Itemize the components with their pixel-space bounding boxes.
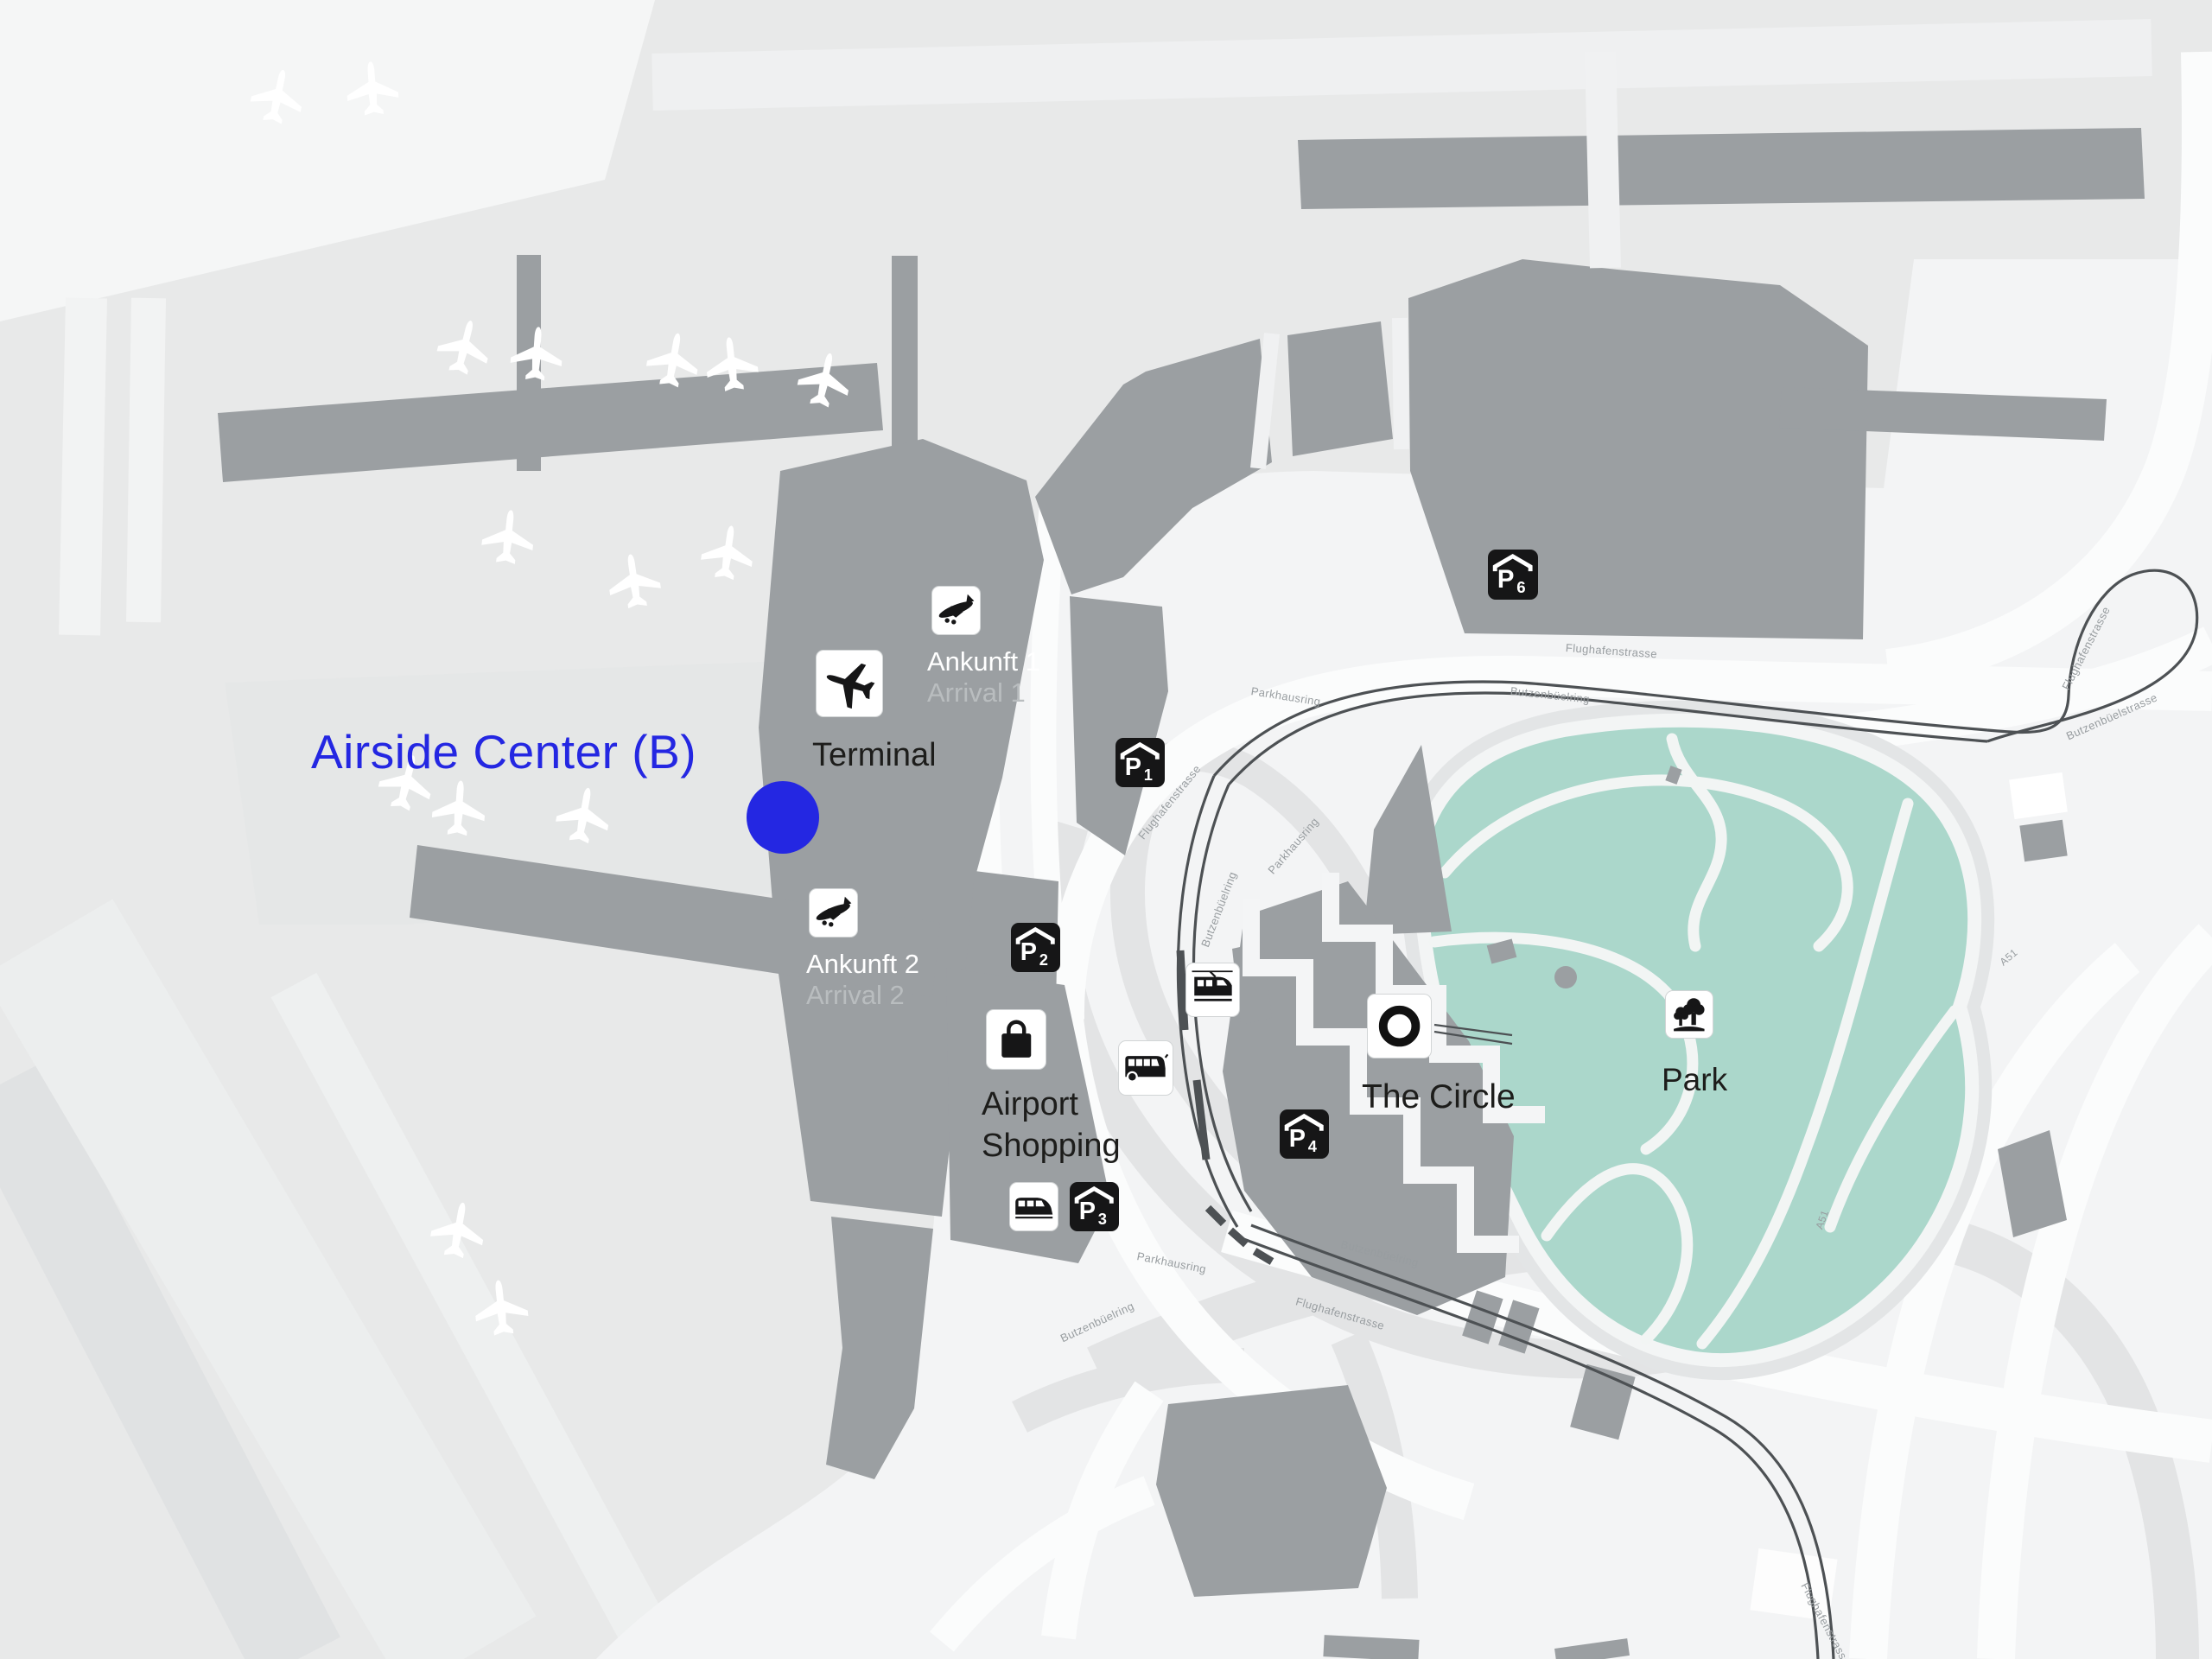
airside-center-label[interactable]: Airside Center (B)	[311, 724, 696, 779]
airport-shopping-line1: Airport	[982, 1084, 1121, 1125]
parking-p2-icon[interactable]: P 2	[1011, 923, 1060, 972]
airplane-icon	[819, 653, 880, 714]
arrival-2-icon[interactable]	[809, 888, 858, 938]
svg-text:6: 6	[1517, 578, 1526, 596]
airport-shopping-line2: Shopping	[982, 1125, 1121, 1166]
arrival-plane-icon	[811, 891, 855, 935]
circle-ring-icon	[1370, 997, 1428, 1055]
tram-stop-icon[interactable]	[1185, 963, 1240, 1017]
bus-stop-icon[interactable]	[1118, 1040, 1173, 1096]
arrival2-label-en: Arrival 2	[806, 980, 905, 1011]
park-trees-icon	[1668, 993, 1711, 1036]
the-circle-icon[interactable]	[1367, 994, 1432, 1058]
svg-text:2: 2	[1039, 950, 1048, 969]
train-station-icon[interactable]	[1009, 1182, 1058, 1231]
svg-text:P: P	[1497, 565, 1515, 594]
arrival1-label-de: Ankunft 1	[927, 646, 1040, 677]
park-label: Park	[1662, 1062, 1727, 1098]
the-circle-label: The Circle	[1362, 1078, 1516, 1116]
shopping-bag-icon	[989, 1013, 1044, 1067]
covered-parking-icon: P 3	[1071, 1184, 1116, 1229]
airport-map: Flughafenstrasse Butzenbüelring Parkhaus…	[0, 0, 2212, 1659]
airport-shopping-label: Airport Shopping	[982, 1084, 1121, 1166]
parking-p1-icon[interactable]: P 1	[1116, 738, 1165, 787]
svg-text:P: P	[1020, 938, 1037, 966]
svg-text:P: P	[1125, 753, 1141, 781]
parking-p6-icon[interactable]: P 6	[1488, 550, 1538, 600]
terminal-airplane-icon[interactable]	[816, 650, 883, 717]
svg-text:1: 1	[1144, 766, 1153, 784]
map-canvas	[0, 0, 2212, 1659]
svg-text:3: 3	[1098, 1210, 1107, 1228]
svg-text:P: P	[1079, 1198, 1096, 1225]
parking-p3-icon[interactable]: P 3	[1070, 1182, 1119, 1231]
svg-text:P: P	[1289, 1125, 1306, 1153]
tram-icon	[1188, 965, 1236, 1014]
arrival-1-icon[interactable]	[931, 586, 981, 635]
arrival1-label-en: Arrival 1	[927, 677, 1026, 709]
bus-icon	[1121, 1043, 1170, 1092]
terminal-label: Terminal	[812, 737, 937, 774]
arrival2-label-de: Ankunft 2	[806, 949, 919, 980]
location-dot[interactable]	[747, 781, 819, 854]
train-icon	[1012, 1185, 1056, 1229]
parking-p4-icon[interactable]: P 4	[1280, 1109, 1329, 1159]
arrival-plane-icon	[934, 588, 978, 632]
covered-parking-icon: P 4	[1281, 1111, 1326, 1156]
park-poi-icon[interactable]	[1665, 990, 1713, 1039]
airport-shopping-icon[interactable]	[986, 1009, 1046, 1070]
covered-parking-icon: P 1	[1117, 740, 1162, 785]
svg-text:4: 4	[1308, 1137, 1318, 1155]
covered-parking-icon: P 2	[1013, 925, 1058, 969]
covered-parking-icon: P 6	[1490, 551, 1535, 597]
